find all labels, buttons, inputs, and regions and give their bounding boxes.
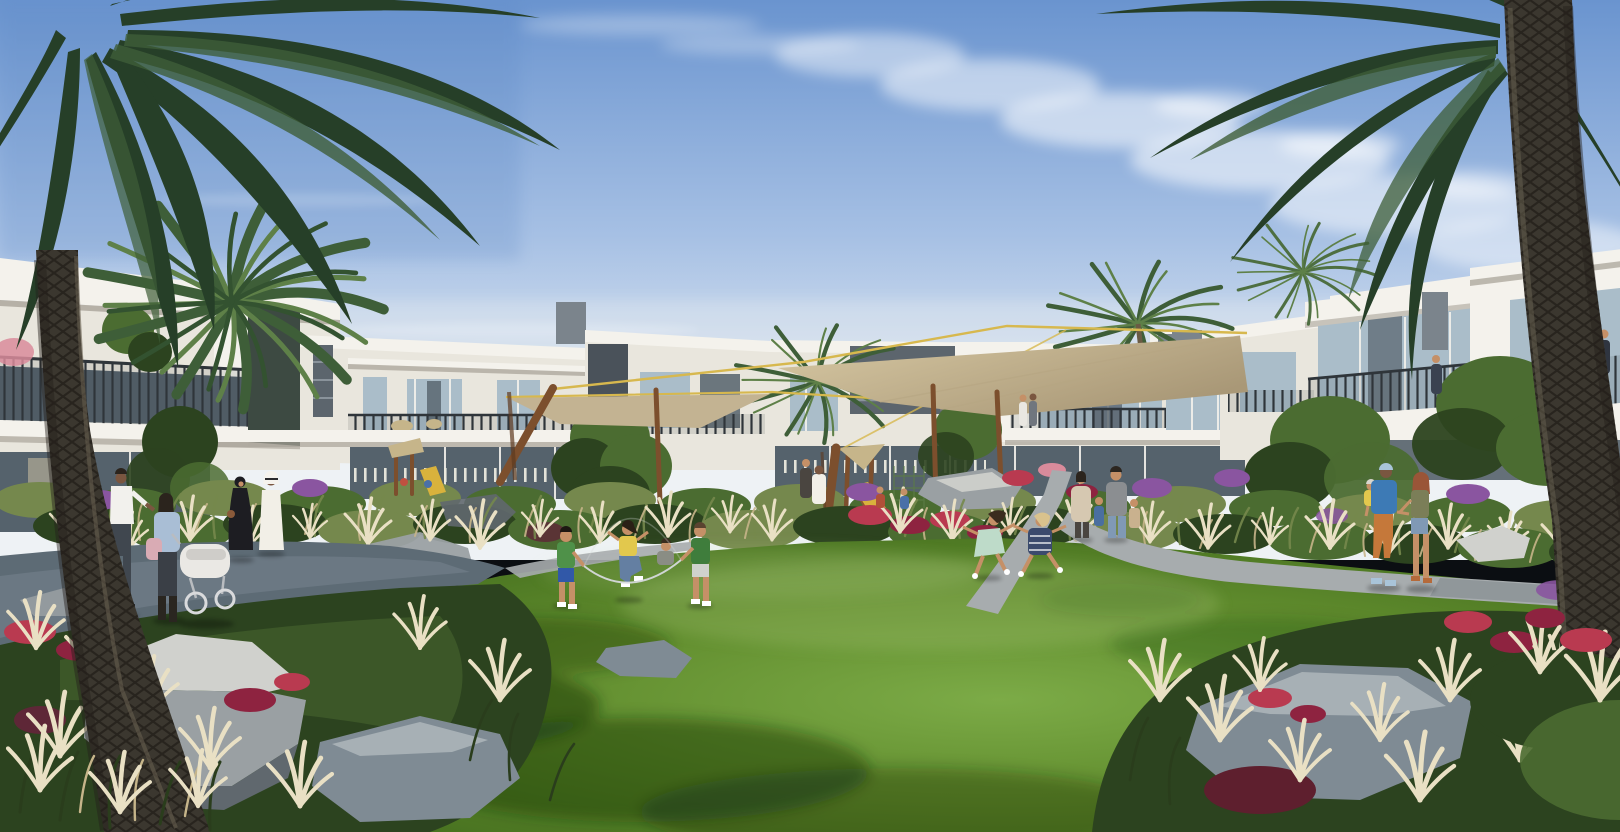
background-volume: [556, 302, 586, 344]
community-render-image: Sunny architectural rendering of a moder…: [0, 0, 1620, 832]
render-canvas: Sunny architectural rendering of a moder…: [0, 0, 1620, 832]
held-hands: [1397, 512, 1409, 514]
handbag: [227, 510, 235, 518]
